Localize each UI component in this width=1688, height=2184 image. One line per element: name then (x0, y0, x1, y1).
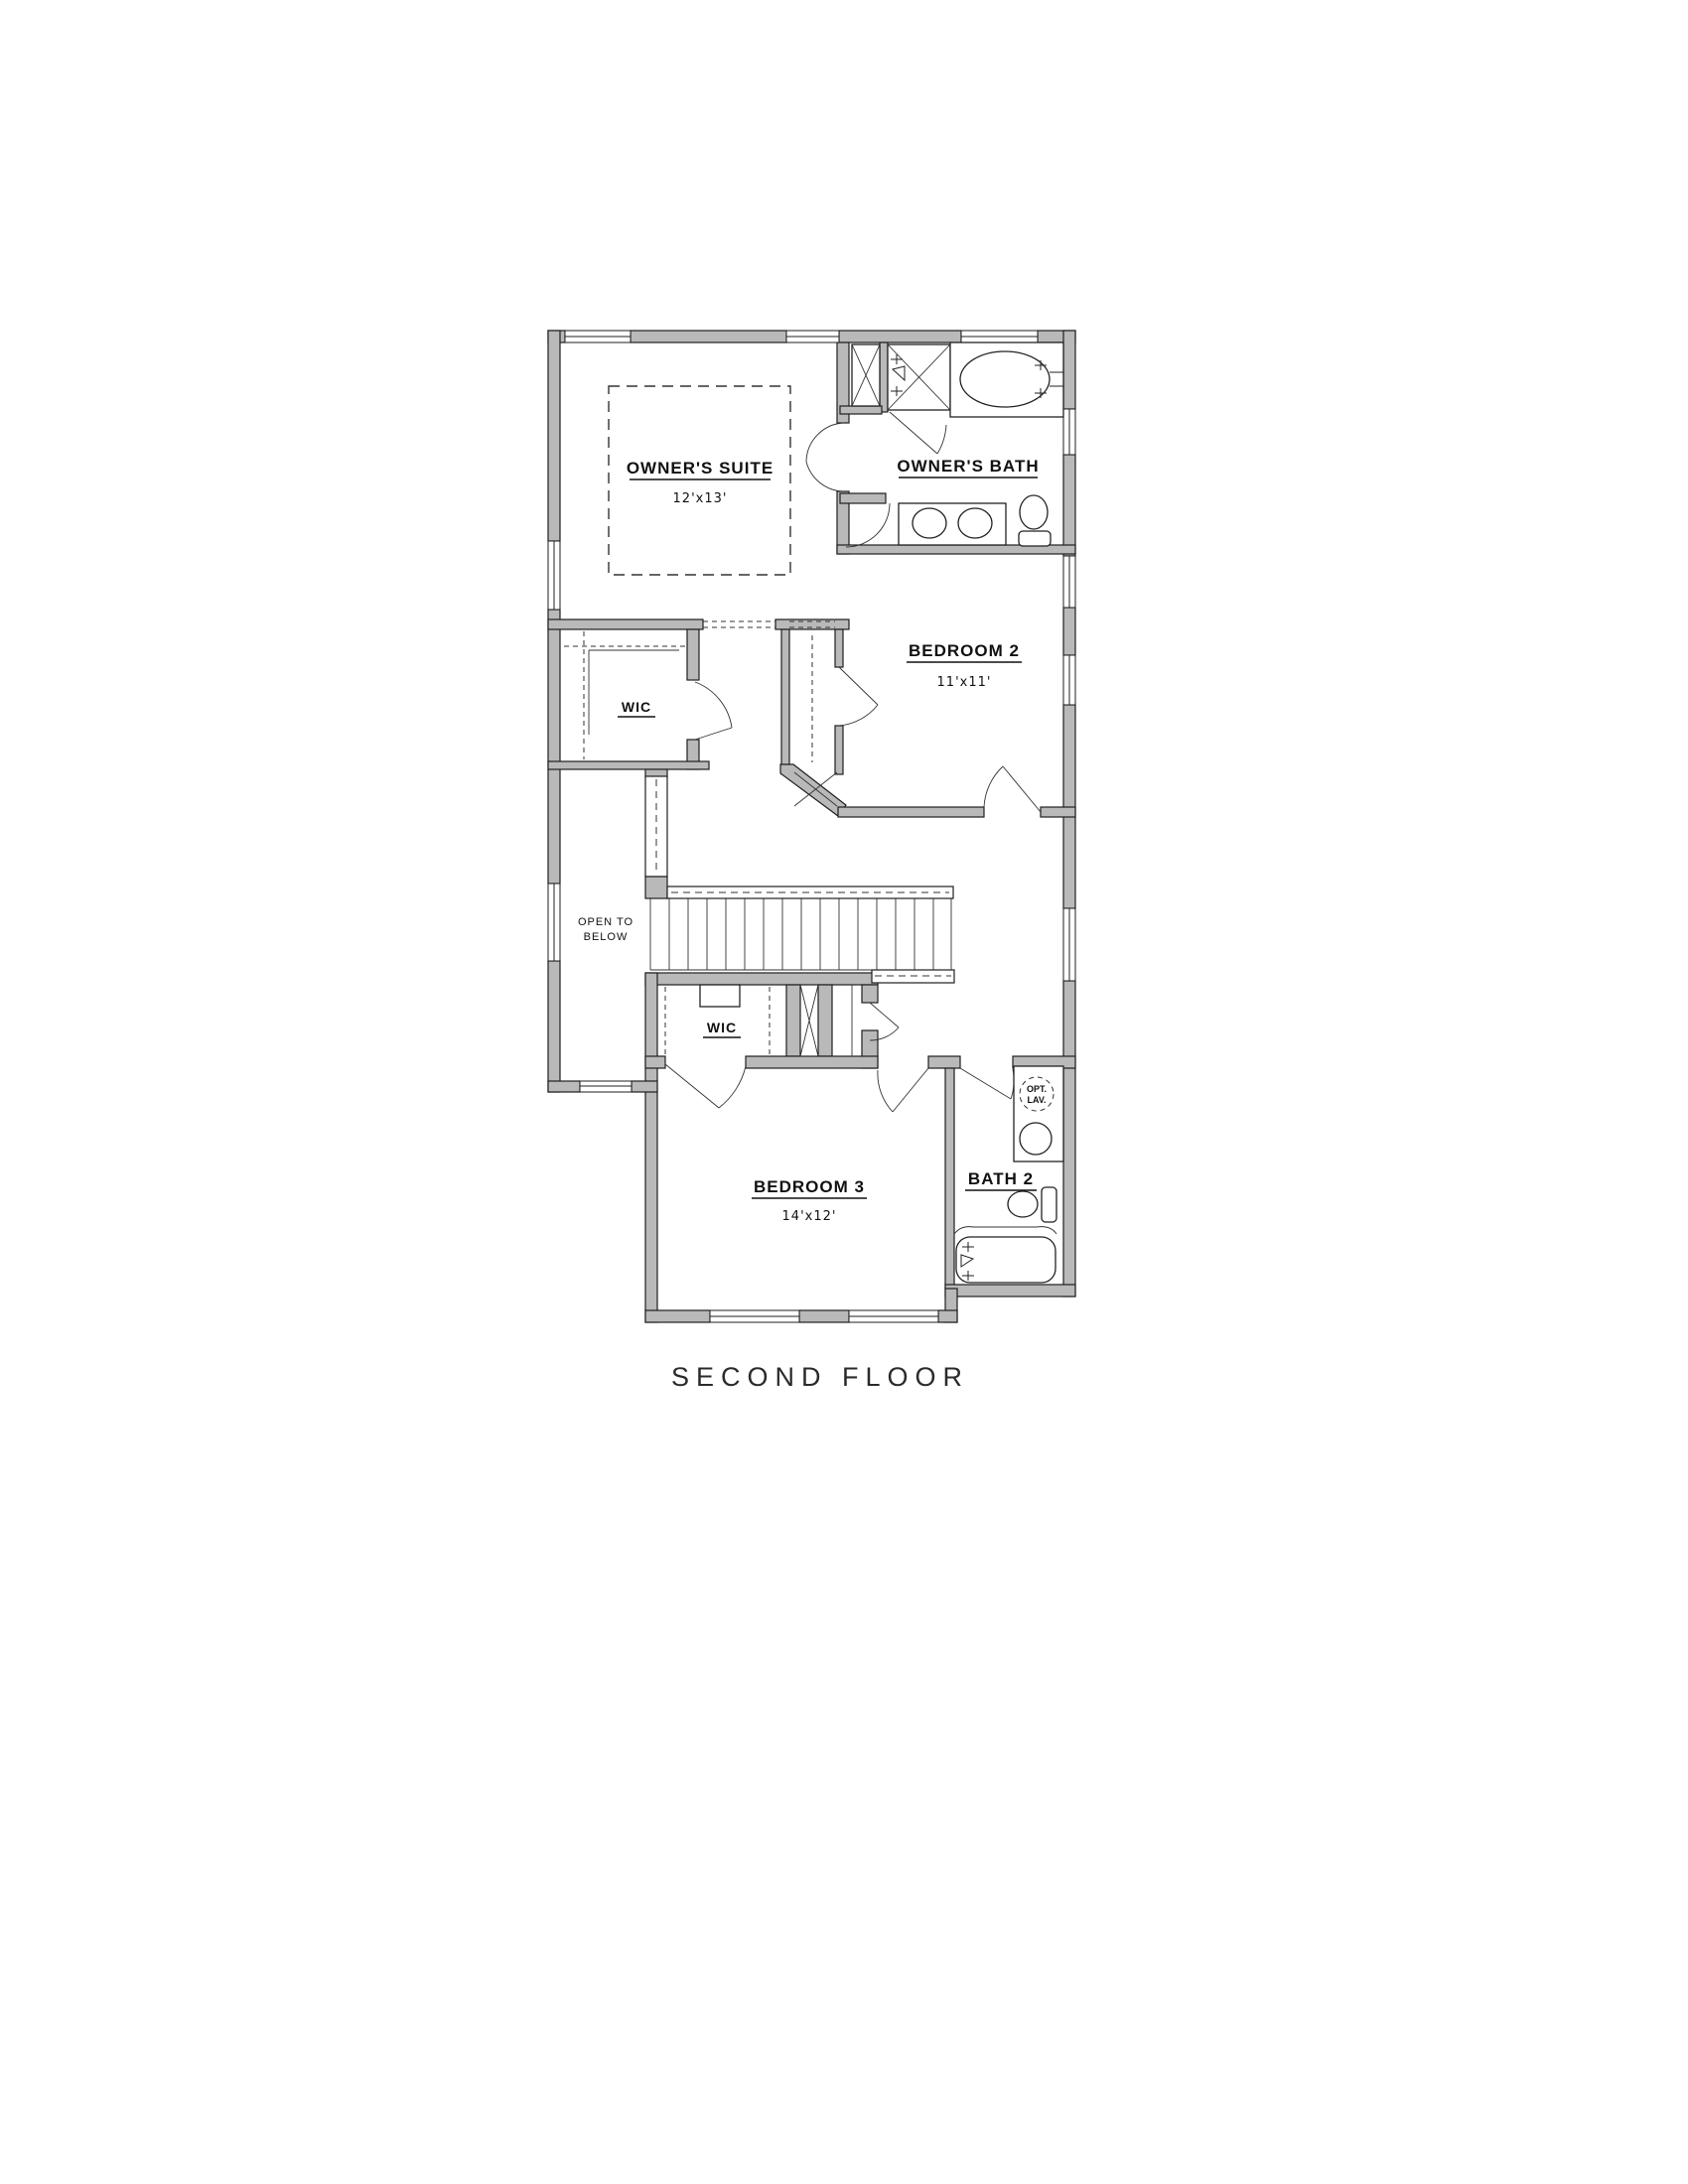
window (565, 331, 631, 342)
window (849, 1310, 938, 1322)
owners-vanity (899, 503, 1006, 545)
owners-bath-label: OWNER'S BATH (897, 457, 1039, 478)
bedroom2-label: BEDROOM 2 11'x11' (907, 641, 1022, 690)
window (961, 331, 1038, 342)
linen-closet-bath (852, 344, 880, 406)
bedroom3-label: BEDROOM 3 14'x12' (752, 1177, 867, 1224)
owners-toilet (1019, 495, 1051, 546)
bath2-vanity (1014, 1066, 1063, 1161)
window (580, 1081, 632, 1092)
bath2-door (960, 1068, 1014, 1099)
water-closet-door-arc (846, 503, 890, 547)
window (548, 884, 560, 961)
floor-plan-page: OWNER'S SUITE 12'x13' OWNER'S BATH BEDRO… (0, 0, 1688, 2184)
bath2-label: BATH 2 (965, 1169, 1037, 1190)
window (1063, 409, 1075, 455)
bath2-tub (954, 1227, 1056, 1283)
bed-outline (609, 386, 790, 575)
page-title: SECOND FLOOR (671, 1362, 969, 1392)
owners-suite-name: OWNER'S SUITE (627, 459, 774, 478)
wic-upper-name: WIC (622, 699, 651, 715)
suite-bath-door-arc (806, 423, 843, 462)
wic-upper-label: WIC (618, 699, 655, 717)
shower-door (890, 412, 946, 454)
bedroom3-dims: 14'x12' (782, 1209, 837, 1224)
stair-treads (650, 898, 951, 970)
owners-bath-name: OWNER'S BATH (897, 457, 1039, 476)
wic-upper-door (695, 682, 732, 740)
bedroom2-closet-door (839, 667, 878, 726)
wic-lower-label: WIC (703, 1020, 741, 1037)
owners-suite-label: OWNER'S SUITE 12'x13' (627, 459, 774, 506)
opt-lav-line2: LAV. (1027, 1095, 1046, 1105)
owners-tub (950, 342, 1063, 417)
shower (888, 344, 950, 410)
opt-lav-label: OPT. LAV. (1027, 1084, 1047, 1105)
window (1063, 655, 1075, 705)
bedroom2-name: BEDROOM 2 (909, 641, 1020, 660)
open-below-line1: OPEN TO (578, 916, 633, 928)
window (1063, 556, 1075, 608)
newel-post (645, 877, 667, 898)
window (710, 1310, 799, 1322)
opt-lav-line1: OPT. (1027, 1084, 1047, 1094)
bath2-name: BATH 2 (968, 1169, 1034, 1188)
open-to-below-label: OPEN TO BELOW (578, 916, 633, 943)
owners-suite-dims: 12'x13' (673, 491, 728, 506)
window (786, 331, 839, 342)
bedroom3-entry-door (878, 1068, 928, 1112)
open-below-line2: BELOW (584, 931, 629, 943)
floor-plan-canvas: OWNER'S SUITE 12'x13' OWNER'S BATH BEDRO… (0, 0, 1688, 2184)
window (548, 541, 560, 610)
bedroom2-entry-door (984, 766, 1041, 812)
wic-lower-name: WIC (707, 1020, 737, 1035)
bedroom3-name: BEDROOM 3 (754, 1177, 865, 1196)
bath2-toilet (1008, 1187, 1056, 1222)
wic-lower-door (665, 1064, 746, 1108)
staircase (645, 772, 954, 983)
stair-hatch (794, 772, 837, 806)
fixtures (564, 342, 1063, 1283)
wic-upper-shelves (564, 631, 685, 759)
window (1063, 908, 1075, 981)
bedroom2-dims: 11'x11' (937, 675, 992, 690)
